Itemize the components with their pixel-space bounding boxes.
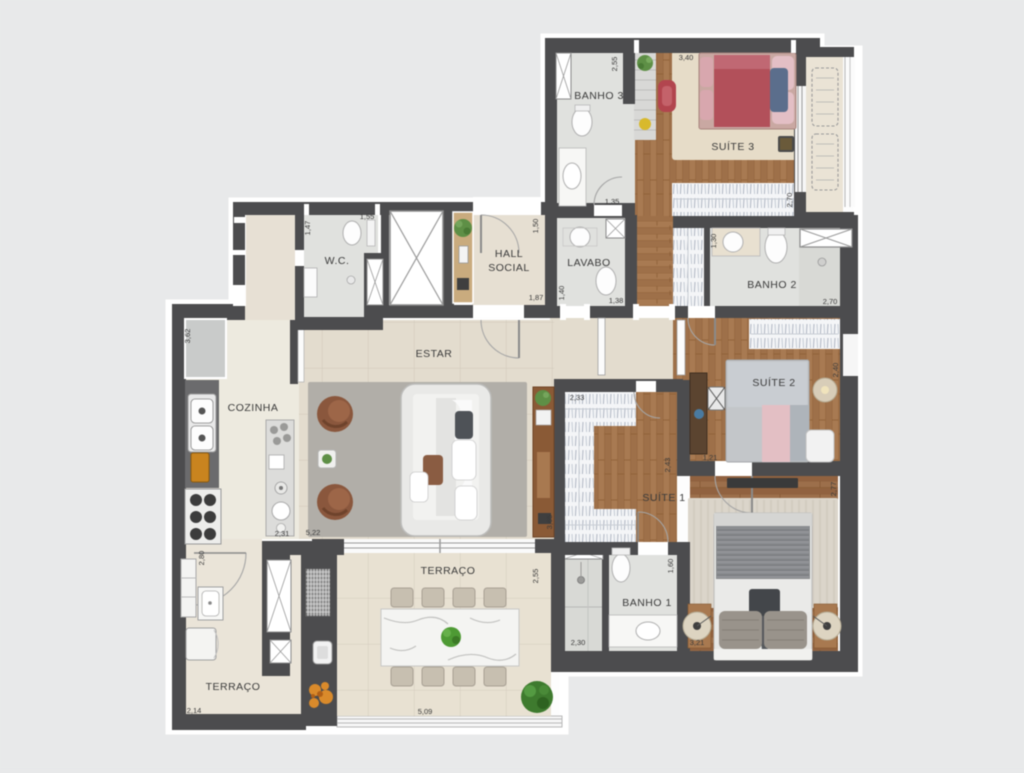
- svg-text:3,65: 3,65: [545, 515, 554, 530]
- svg-text:2,43: 2,43: [663, 458, 672, 473]
- svg-text:5,09: 5,09: [418, 707, 433, 716]
- svg-text:SUÍTE 3: SUÍTE 3: [711, 140, 754, 153]
- svg-text:1,87: 1,87: [529, 293, 544, 302]
- svg-text:3,40: 3,40: [679, 53, 694, 62]
- svg-text:1,30: 1,30: [709, 234, 718, 249]
- svg-text:2,30: 2,30: [571, 638, 586, 647]
- svg-text:2,33: 2,33: [570, 393, 585, 402]
- svg-text:1,21: 1,21: [703, 453, 718, 462]
- svg-text:BANHO 1: BANHO 1: [622, 597, 672, 609]
- svg-text:HALL: HALL: [495, 248, 523, 260]
- svg-text:TERRAÇO: TERRAÇO: [206, 681, 261, 693]
- svg-text:BANHO 2: BANHO 2: [747, 279, 797, 291]
- svg-text:2,55: 2,55: [610, 57, 619, 72]
- svg-text:TERRAÇO: TERRAÇO: [421, 565, 476, 577]
- svg-text:1,35: 1,35: [605, 197, 620, 206]
- svg-text:2,14: 2,14: [187, 706, 202, 715]
- svg-text:2,31: 2,31: [275, 529, 290, 538]
- svg-text:LAVABO: LAVABO: [567, 257, 610, 269]
- svg-text:SUÍTE 1: SUÍTE 1: [642, 491, 685, 504]
- svg-text:2,70: 2,70: [785, 193, 794, 208]
- svg-text:SUÍTE 2: SUÍTE 2: [752, 376, 795, 389]
- svg-text:3,21: 3,21: [690, 638, 705, 647]
- svg-text:2,70: 2,70: [823, 297, 838, 306]
- svg-text:W.C.: W.C.: [325, 255, 350, 267]
- svg-text:SOCIAL: SOCIAL: [488, 262, 530, 274]
- svg-text:1,40: 1,40: [557, 286, 566, 301]
- svg-text:1,55: 1,55: [360, 212, 375, 221]
- svg-text:2,55: 2,55: [531, 569, 540, 584]
- svg-text:2,77: 2,77: [829, 482, 838, 497]
- svg-text:1,60: 1,60: [666, 559, 675, 574]
- svg-text:1,47: 1,47: [303, 221, 312, 236]
- svg-text:COZINHA: COZINHA: [228, 402, 279, 414]
- svg-text:1,38: 1,38: [609, 296, 624, 305]
- svg-text:2,40: 2,40: [831, 363, 840, 378]
- svg-text:2,80: 2,80: [197, 551, 206, 566]
- svg-text:3,62: 3,62: [183, 329, 192, 344]
- svg-text:1,50: 1,50: [531, 219, 540, 234]
- svg-text:5,22: 5,22: [306, 528, 321, 537]
- svg-text:ESTAR: ESTAR: [416, 348, 453, 360]
- svg-text:BANHO 3: BANHO 3: [574, 90, 624, 102]
